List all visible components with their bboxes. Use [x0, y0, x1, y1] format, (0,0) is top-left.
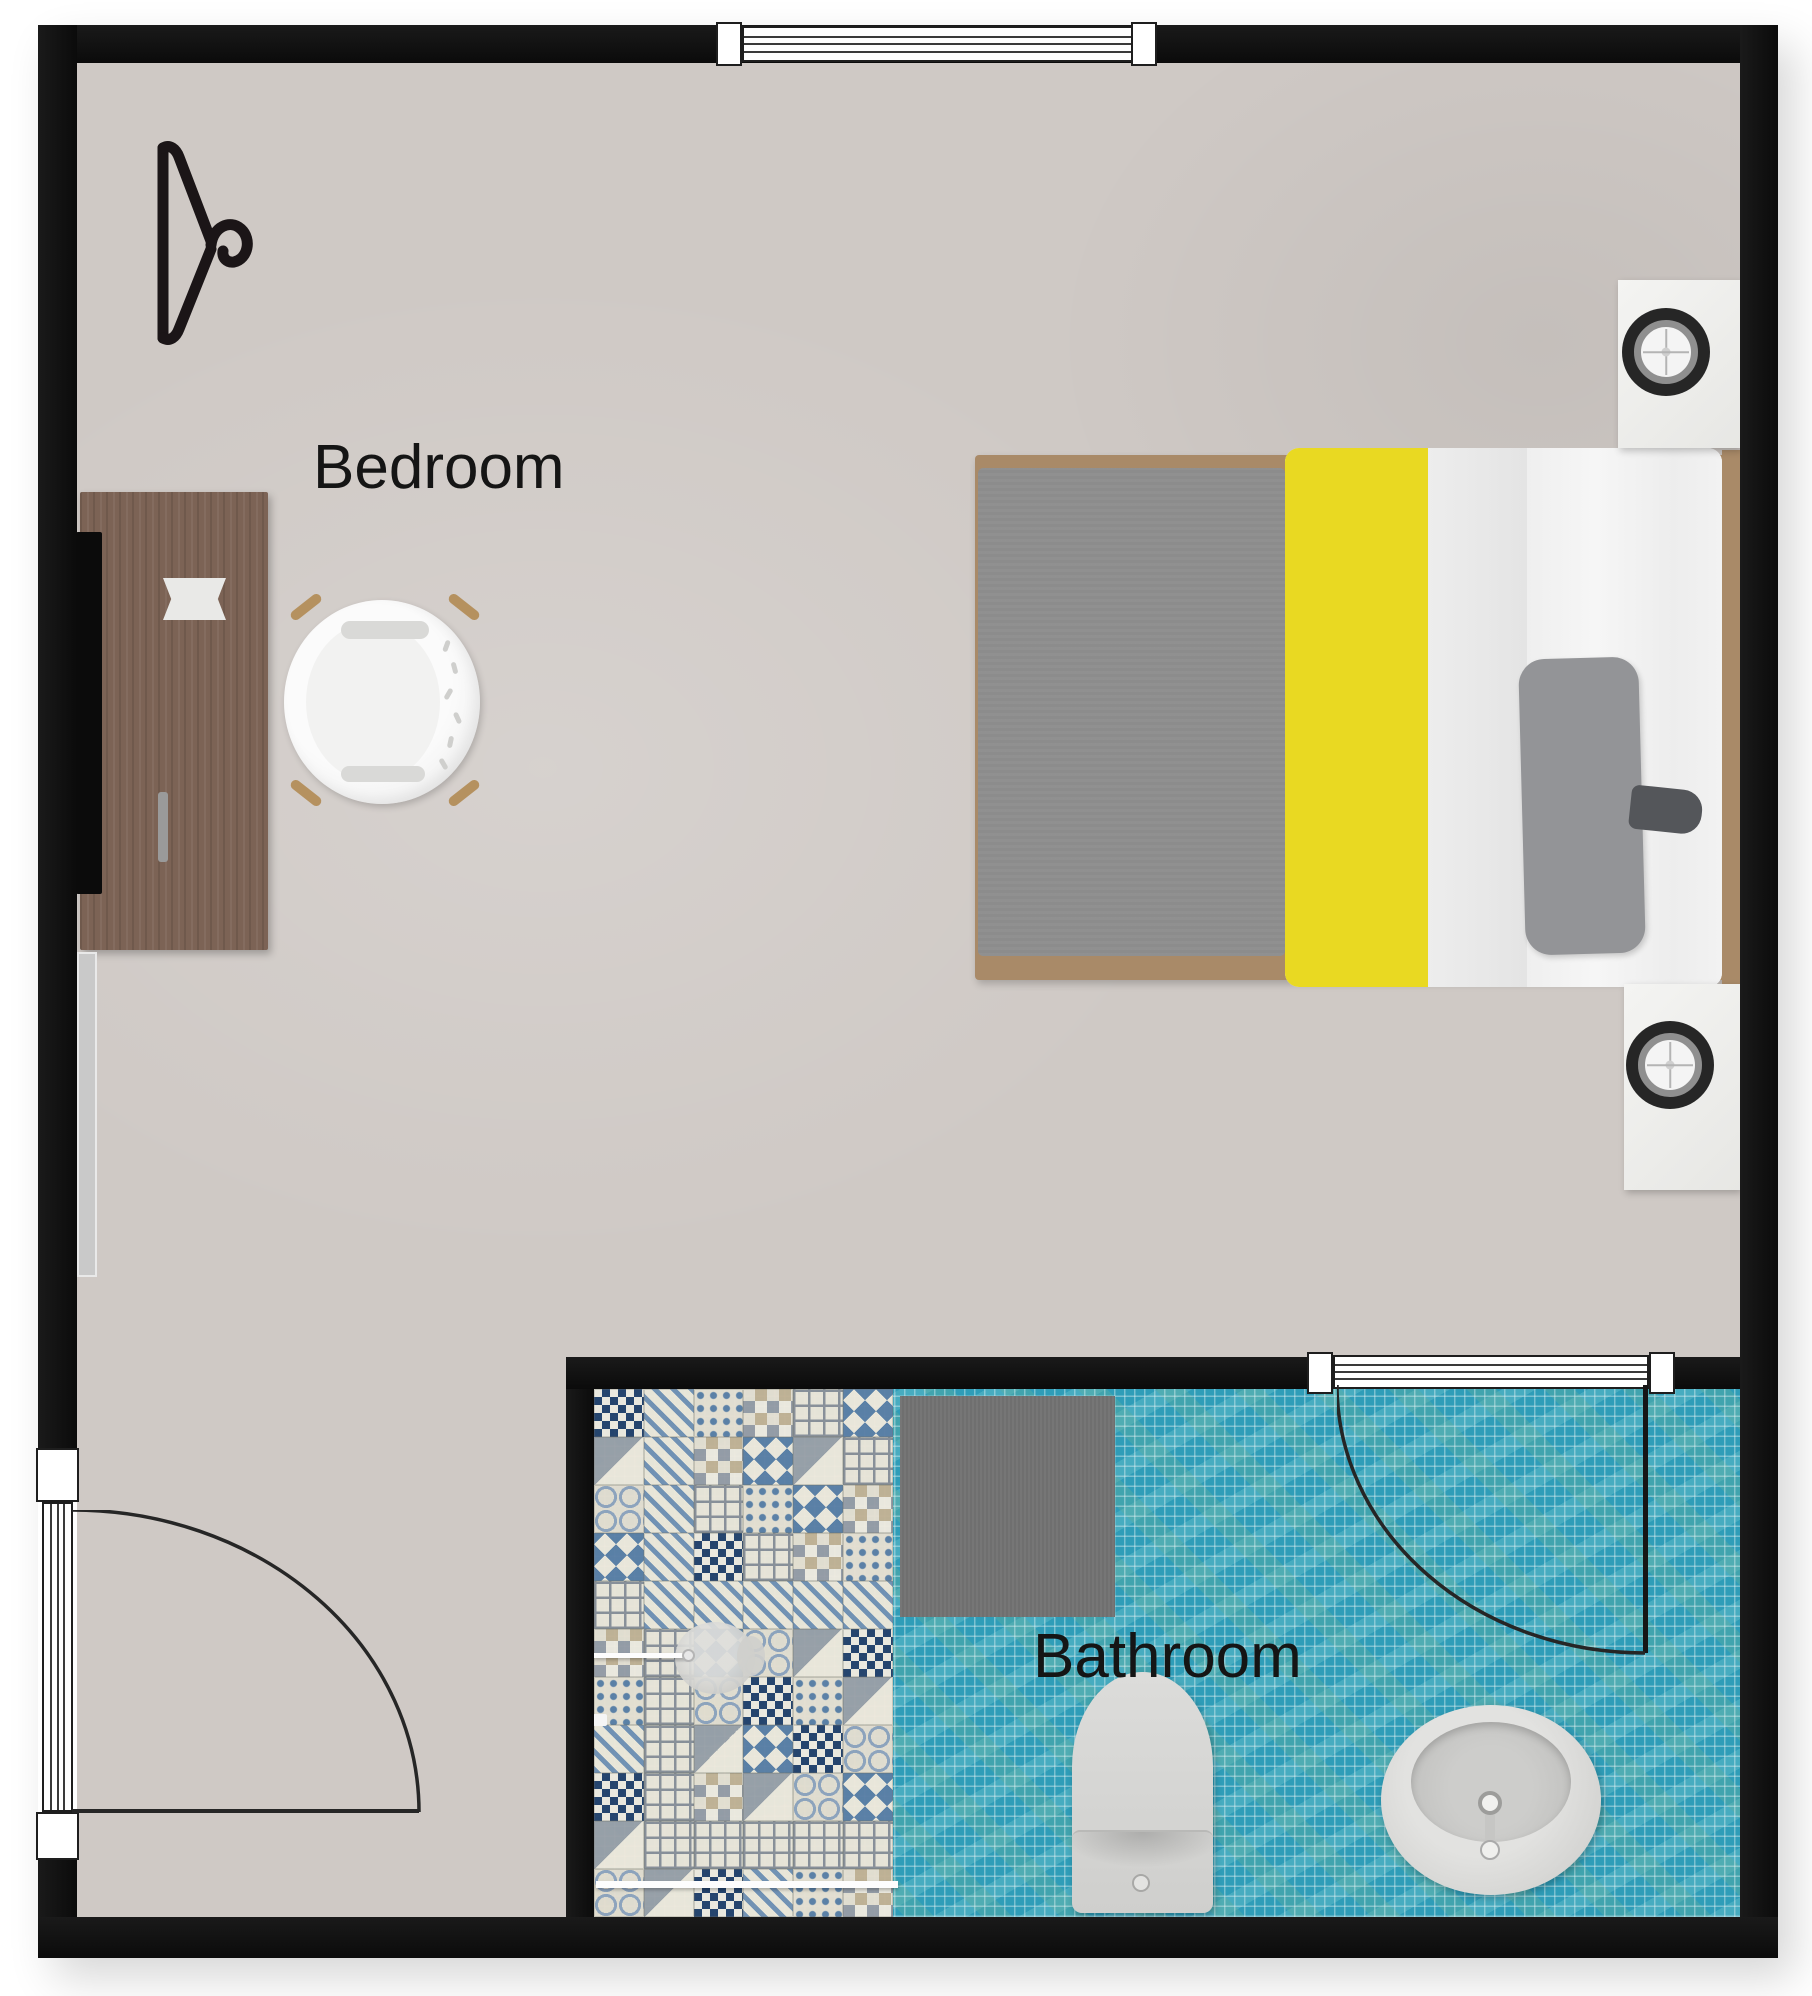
- shower-tile: [843, 1677, 893, 1725]
- bed-blanket[interactable]: [978, 468, 1285, 956]
- door-frame-cap: [36, 1812, 79, 1860]
- desk[interactable]: [80, 492, 268, 950]
- door-frame-cap: [36, 1448, 79, 1502]
- chair-slot: [341, 766, 425, 782]
- shower-tile: [694, 1485, 744, 1533]
- desk-paper: [163, 578, 226, 620]
- shower-tile: [843, 1629, 893, 1677]
- shower-tile: [644, 1437, 694, 1485]
- shower-tile: [793, 1485, 843, 1533]
- shower-tile: [743, 1821, 793, 1869]
- bath-mat[interactable]: [900, 1396, 1115, 1617]
- shower-tile: [594, 1869, 644, 1917]
- shower-tile: [694, 1821, 744, 1869]
- bathroom-wall-left: [566, 1357, 594, 1917]
- bedroom-window[interactable]: [742, 26, 1133, 62]
- shower-tile: [743, 1389, 793, 1437]
- shower-tile: [793, 1437, 843, 1485]
- shower-tile: [644, 1533, 694, 1581]
- shower-tile: [793, 1389, 843, 1437]
- shower-tile: [843, 1581, 893, 1629]
- faucet-knob-icon: [1480, 1840, 1500, 1860]
- speaker-icon[interactable]: [1626, 1021, 1714, 1109]
- shower-tile: [793, 1725, 843, 1773]
- shower-tile: [594, 1725, 644, 1773]
- shower-tile: [743, 1581, 793, 1629]
- shower-tile: [594, 1485, 644, 1533]
- double-bed[interactable]: [1285, 448, 1722, 987]
- speaker-icon[interactable]: [1622, 308, 1710, 396]
- shower-tile: [644, 1821, 694, 1869]
- shower-bar-knob: [682, 1649, 695, 1662]
- shower-tile: [843, 1485, 893, 1533]
- window-frame-cap: [1307, 1352, 1333, 1394]
- tv[interactable]: [76, 532, 102, 894]
- floor-plan: Bedroom Bathroom: [0, 0, 1812, 1996]
- pillow-accent: [1628, 784, 1704, 835]
- shower-tile: [793, 1581, 843, 1629]
- mirror[interactable]: [77, 952, 97, 1277]
- bathroom-window[interactable]: [1333, 1355, 1649, 1389]
- shower-tile: [594, 1389, 644, 1437]
- faucet-ring-icon: [1478, 1791, 1502, 1815]
- shower-tile: [843, 1725, 893, 1773]
- shower-tile: [843, 1869, 893, 1917]
- shower-knob-icon[interactable]: [737, 1636, 765, 1676]
- shower-towel-bar: [594, 1653, 690, 1658]
- desk-drawer-handle: [158, 792, 168, 862]
- shower-tile: [743, 1485, 793, 1533]
- shower-tile: [793, 1773, 843, 1821]
- shower-tile: [594, 1581, 644, 1629]
- shower-tile: [644, 1869, 694, 1917]
- bed-headboard: [1722, 450, 1740, 985]
- wall-right: [1740, 25, 1778, 1958]
- shower-tile: [793, 1821, 843, 1869]
- chair-slot: [341, 621, 429, 639]
- shower-tile: [644, 1485, 694, 1533]
- speaker-cone: [1634, 320, 1698, 384]
- shower-tile: [594, 1533, 644, 1581]
- speaker-cone: [1638, 1033, 1702, 1097]
- pillow[interactable]: [1518, 656, 1646, 955]
- bed-white-stripe: [1428, 448, 1527, 987]
- shower-tile: [743, 1869, 793, 1917]
- shower-tile: [594, 1821, 644, 1869]
- shower-tile: [644, 1389, 694, 1437]
- shower-tile: [694, 1389, 744, 1437]
- shower-tile: [843, 1821, 893, 1869]
- wall-left-upper: [38, 25, 77, 1448]
- shower-tile: [793, 1629, 843, 1677]
- toilet-bowl-shading: [1072, 1830, 1213, 1913]
- wall-bottom: [38, 1917, 1778, 1958]
- shower-tile: [843, 1773, 893, 1821]
- shower-tile: [644, 1677, 694, 1725]
- shower-tile: [843, 1389, 893, 1437]
- chair-seat-inner: [306, 622, 440, 782]
- shower-tile: [594, 1437, 644, 1485]
- shower-tile: [843, 1437, 893, 1485]
- shower-tile: [694, 1725, 744, 1773]
- shower-soap-dish: [593, 1714, 607, 1726]
- clothes-hanger-icon[interactable]: [137, 130, 267, 355]
- window-frame-cap: [1131, 22, 1157, 66]
- shower-tile: [644, 1773, 694, 1821]
- shower-tile: [594, 1773, 644, 1821]
- shower-tile: [743, 1437, 793, 1485]
- entry-door-swing-arc: [72, 1510, 421, 1814]
- entry-door[interactable]: [42, 1502, 73, 1812]
- shower-tile: [743, 1773, 793, 1821]
- shower-tile: [843, 1533, 893, 1581]
- shower-tile: [694, 1773, 744, 1821]
- shower-tile: [793, 1533, 843, 1581]
- shower-tile: [694, 1869, 744, 1917]
- window-frame-cap: [1649, 1352, 1675, 1394]
- shower-tile: [793, 1677, 843, 1725]
- shower-tile: [644, 1725, 694, 1773]
- shower-tile: [644, 1581, 694, 1629]
- window-frame-cap: [716, 22, 742, 66]
- shower-tile: [694, 1533, 744, 1581]
- shower-tile: [694, 1437, 744, 1485]
- bathroom-door-swing-arc: [1337, 1385, 1647, 1655]
- shower-glass-partition: [596, 1881, 898, 1888]
- shower-tile: [743, 1677, 793, 1725]
- shower-tile: [743, 1725, 793, 1773]
- bedroom-label: Bedroom: [313, 437, 565, 499]
- toilet-flush-button-icon: [1132, 1874, 1150, 1892]
- bed-yellow-runner: [1285, 448, 1428, 987]
- shower-tile: [743, 1533, 793, 1581]
- shower-tile: [793, 1869, 843, 1917]
- bathroom-label: Bathroom: [1033, 1626, 1302, 1688]
